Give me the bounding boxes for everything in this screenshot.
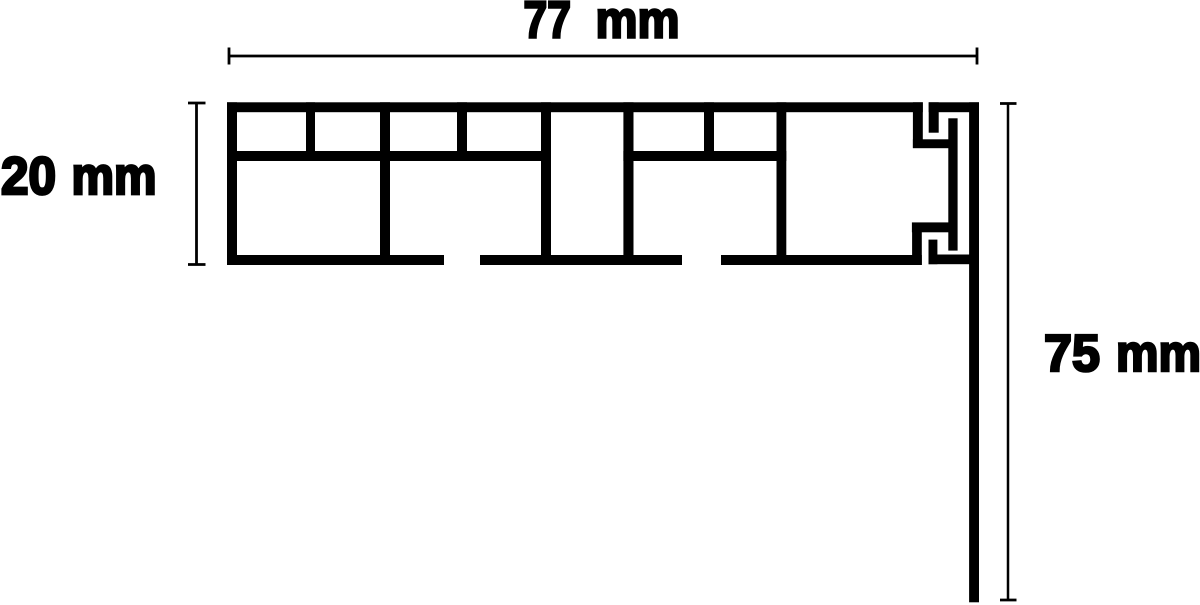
svg-text:mm: mm — [72, 147, 157, 206]
svg-text:75: 75 — [1044, 325, 1100, 383]
svg-text:77: 77 — [524, 0, 572, 50]
svg-text:mm: mm — [596, 0, 680, 50]
svg-text:mm: mm — [1116, 325, 1200, 383]
svg-text:20: 20 — [1, 147, 56, 206]
